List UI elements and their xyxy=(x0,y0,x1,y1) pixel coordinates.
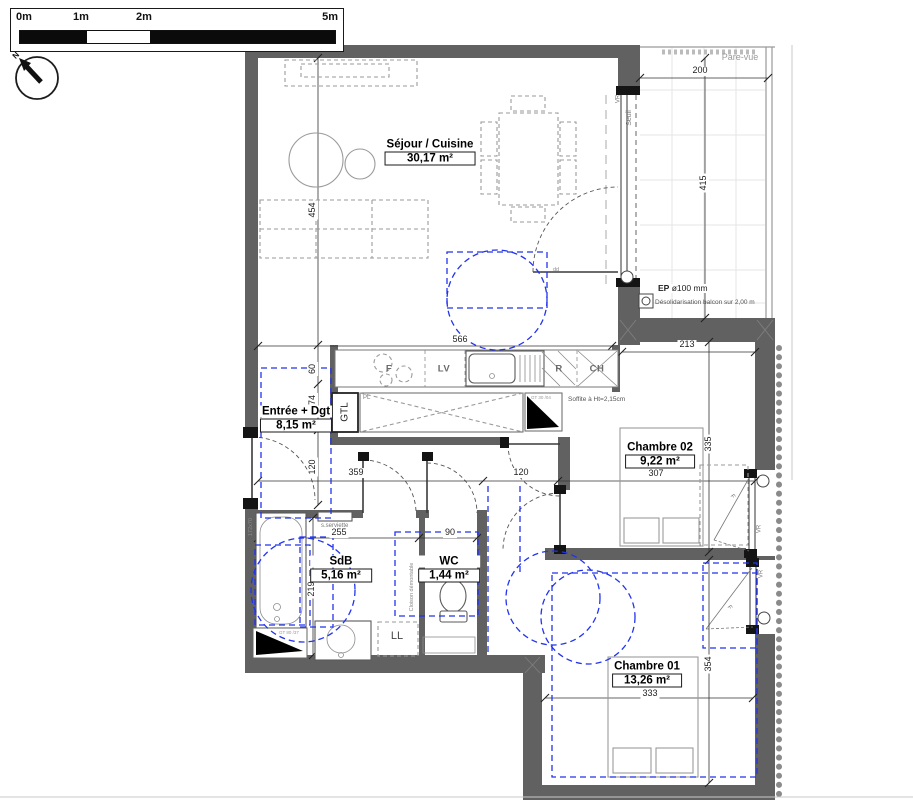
room-label-entree: Entrée + Dgt 8,15 m² xyxy=(260,406,332,433)
room-label-chambre02: Chambre 02 9,22 m² xyxy=(625,442,695,469)
chair xyxy=(481,122,497,156)
chair xyxy=(511,207,545,222)
room-name: Chambre 01 xyxy=(612,661,682,673)
pillow xyxy=(624,518,659,543)
toilet xyxy=(440,580,466,612)
scale-bar-ruler xyxy=(19,30,336,44)
soffite-note: Soffite à Ht=2,15cm xyxy=(567,397,626,404)
appliance-oven: F xyxy=(386,364,392,375)
beds xyxy=(608,428,748,777)
ep-code: EP xyxy=(658,283,669,293)
dim-entry-120: 120 xyxy=(308,457,318,476)
chair xyxy=(560,160,576,194)
window-symbol xyxy=(621,271,633,283)
dim-chambre02-height: 335 xyxy=(704,434,714,453)
room-name: Chambre 02 xyxy=(625,442,695,454)
dim-chambre01-width: 333 xyxy=(640,689,659,699)
dining-table xyxy=(499,113,558,205)
room-name: WC xyxy=(418,556,480,568)
dim-chambre02-width: 307 xyxy=(646,469,665,479)
dim-sdb-width: 255 xyxy=(329,528,348,538)
radiator-ref: GT 80 /37 xyxy=(278,631,300,636)
dim-kitchen-width: 566 xyxy=(450,335,469,345)
bathroom-fixtures xyxy=(253,512,475,660)
room-area: 5,16 m² xyxy=(310,569,372,583)
desolidarisation-note: Désolidarisation balcon sur 2,00 m xyxy=(654,300,756,307)
dim-hall-left: 359 xyxy=(346,468,365,478)
scale-label-1: 1m xyxy=(73,11,89,23)
pillow xyxy=(656,748,693,773)
room-label-sejour: Séjour / Cuisine 30,17 m² xyxy=(385,139,476,166)
towel-dryer-label: s.serviette xyxy=(320,523,349,529)
room-name: SdB xyxy=(310,556,372,568)
room-label-sdb: SdB 5,16 m² xyxy=(310,556,372,583)
chair xyxy=(511,96,545,111)
scale-label-0: 0m xyxy=(16,11,32,23)
placard-label: PL xyxy=(362,395,371,401)
dim-below-balcony: 213 xyxy=(677,340,696,350)
dim-sejour-height: 454 xyxy=(308,200,318,219)
room-area: 9,22 m² xyxy=(625,455,695,469)
door-note: dd xyxy=(552,268,560,274)
armchair xyxy=(289,133,343,187)
dim-chambre01-height: 354 xyxy=(704,654,714,673)
scale-segment xyxy=(87,31,150,43)
bathtub xyxy=(256,513,306,628)
chair xyxy=(481,160,497,194)
washing-machine-label: LL xyxy=(389,630,405,642)
window-clearance xyxy=(700,465,748,545)
gtl-label: GTL xyxy=(340,400,351,423)
room-area: 13,26 m² xyxy=(612,674,682,688)
dim-balcony-height: 415 xyxy=(699,173,709,192)
room-label-wc: WC 1,44 m² xyxy=(418,556,480,583)
scale-bar: 0m 1m 2m 5m xyxy=(10,8,344,52)
room-area: 30,17 m² xyxy=(385,152,476,166)
scale-label-5: 5m xyxy=(322,11,338,23)
appliance-water-heater: CH xyxy=(590,364,605,375)
vr-label: VR xyxy=(759,568,766,580)
room-label-chambre01: Chambre 01 13,26 m² xyxy=(612,661,682,688)
pillow xyxy=(613,748,651,773)
appliance-fridge: R xyxy=(555,364,562,375)
ep-size: ø100 mm xyxy=(672,283,708,293)
scale-segment xyxy=(150,31,335,43)
scale-label-2: 2m xyxy=(136,11,152,23)
vr-label: VR xyxy=(757,523,764,535)
kitchen-counter xyxy=(332,350,618,432)
room-area: 1,44 m² xyxy=(418,569,480,583)
pare-vue-label: Pare-vue xyxy=(720,53,761,63)
cloison-demontable-label: Cloison démontable xyxy=(409,561,415,614)
bathtub-size-label: 172x70 xyxy=(248,516,254,538)
dim-balcony-width: 200 xyxy=(690,66,709,76)
pillow xyxy=(663,518,699,543)
seuil-label: Seuil xyxy=(626,108,634,128)
ep-label: EP ø100 mm xyxy=(657,284,709,293)
room-name: Entrée + Dgt xyxy=(260,406,332,418)
dim-wc-width: 90 xyxy=(443,528,457,538)
floor-plan-drawing xyxy=(0,0,913,800)
window-symbol xyxy=(758,612,770,624)
floor-plan: 0m 1m 2m 5m N Séjour / Cuisine 30,17 m² … xyxy=(0,0,913,800)
radiator-ref: GT 30 /04 xyxy=(530,396,552,401)
dim-hall-mid: 120 xyxy=(511,468,530,478)
towel-dryer xyxy=(318,512,352,521)
appliance-dishwasher: LV xyxy=(438,364,450,375)
north-compass-icon xyxy=(16,57,58,99)
vr-label: VR xyxy=(616,93,623,105)
dim-entry-60: 60 xyxy=(308,362,318,376)
wc-cabinet xyxy=(423,637,475,653)
room-name: Séjour / Cuisine xyxy=(385,139,476,151)
scale-segment xyxy=(20,31,87,43)
room-area: 8,15 m² xyxy=(260,419,332,433)
side-table xyxy=(345,149,375,179)
chair xyxy=(560,122,576,156)
